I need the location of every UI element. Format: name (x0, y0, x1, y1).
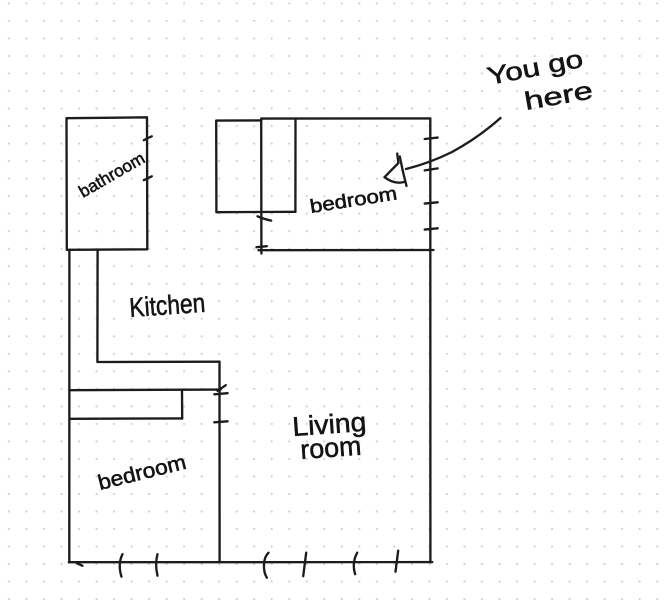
svg-text:Kitchen: Kitchen (128, 288, 206, 323)
svg-text:room: room (299, 431, 362, 465)
